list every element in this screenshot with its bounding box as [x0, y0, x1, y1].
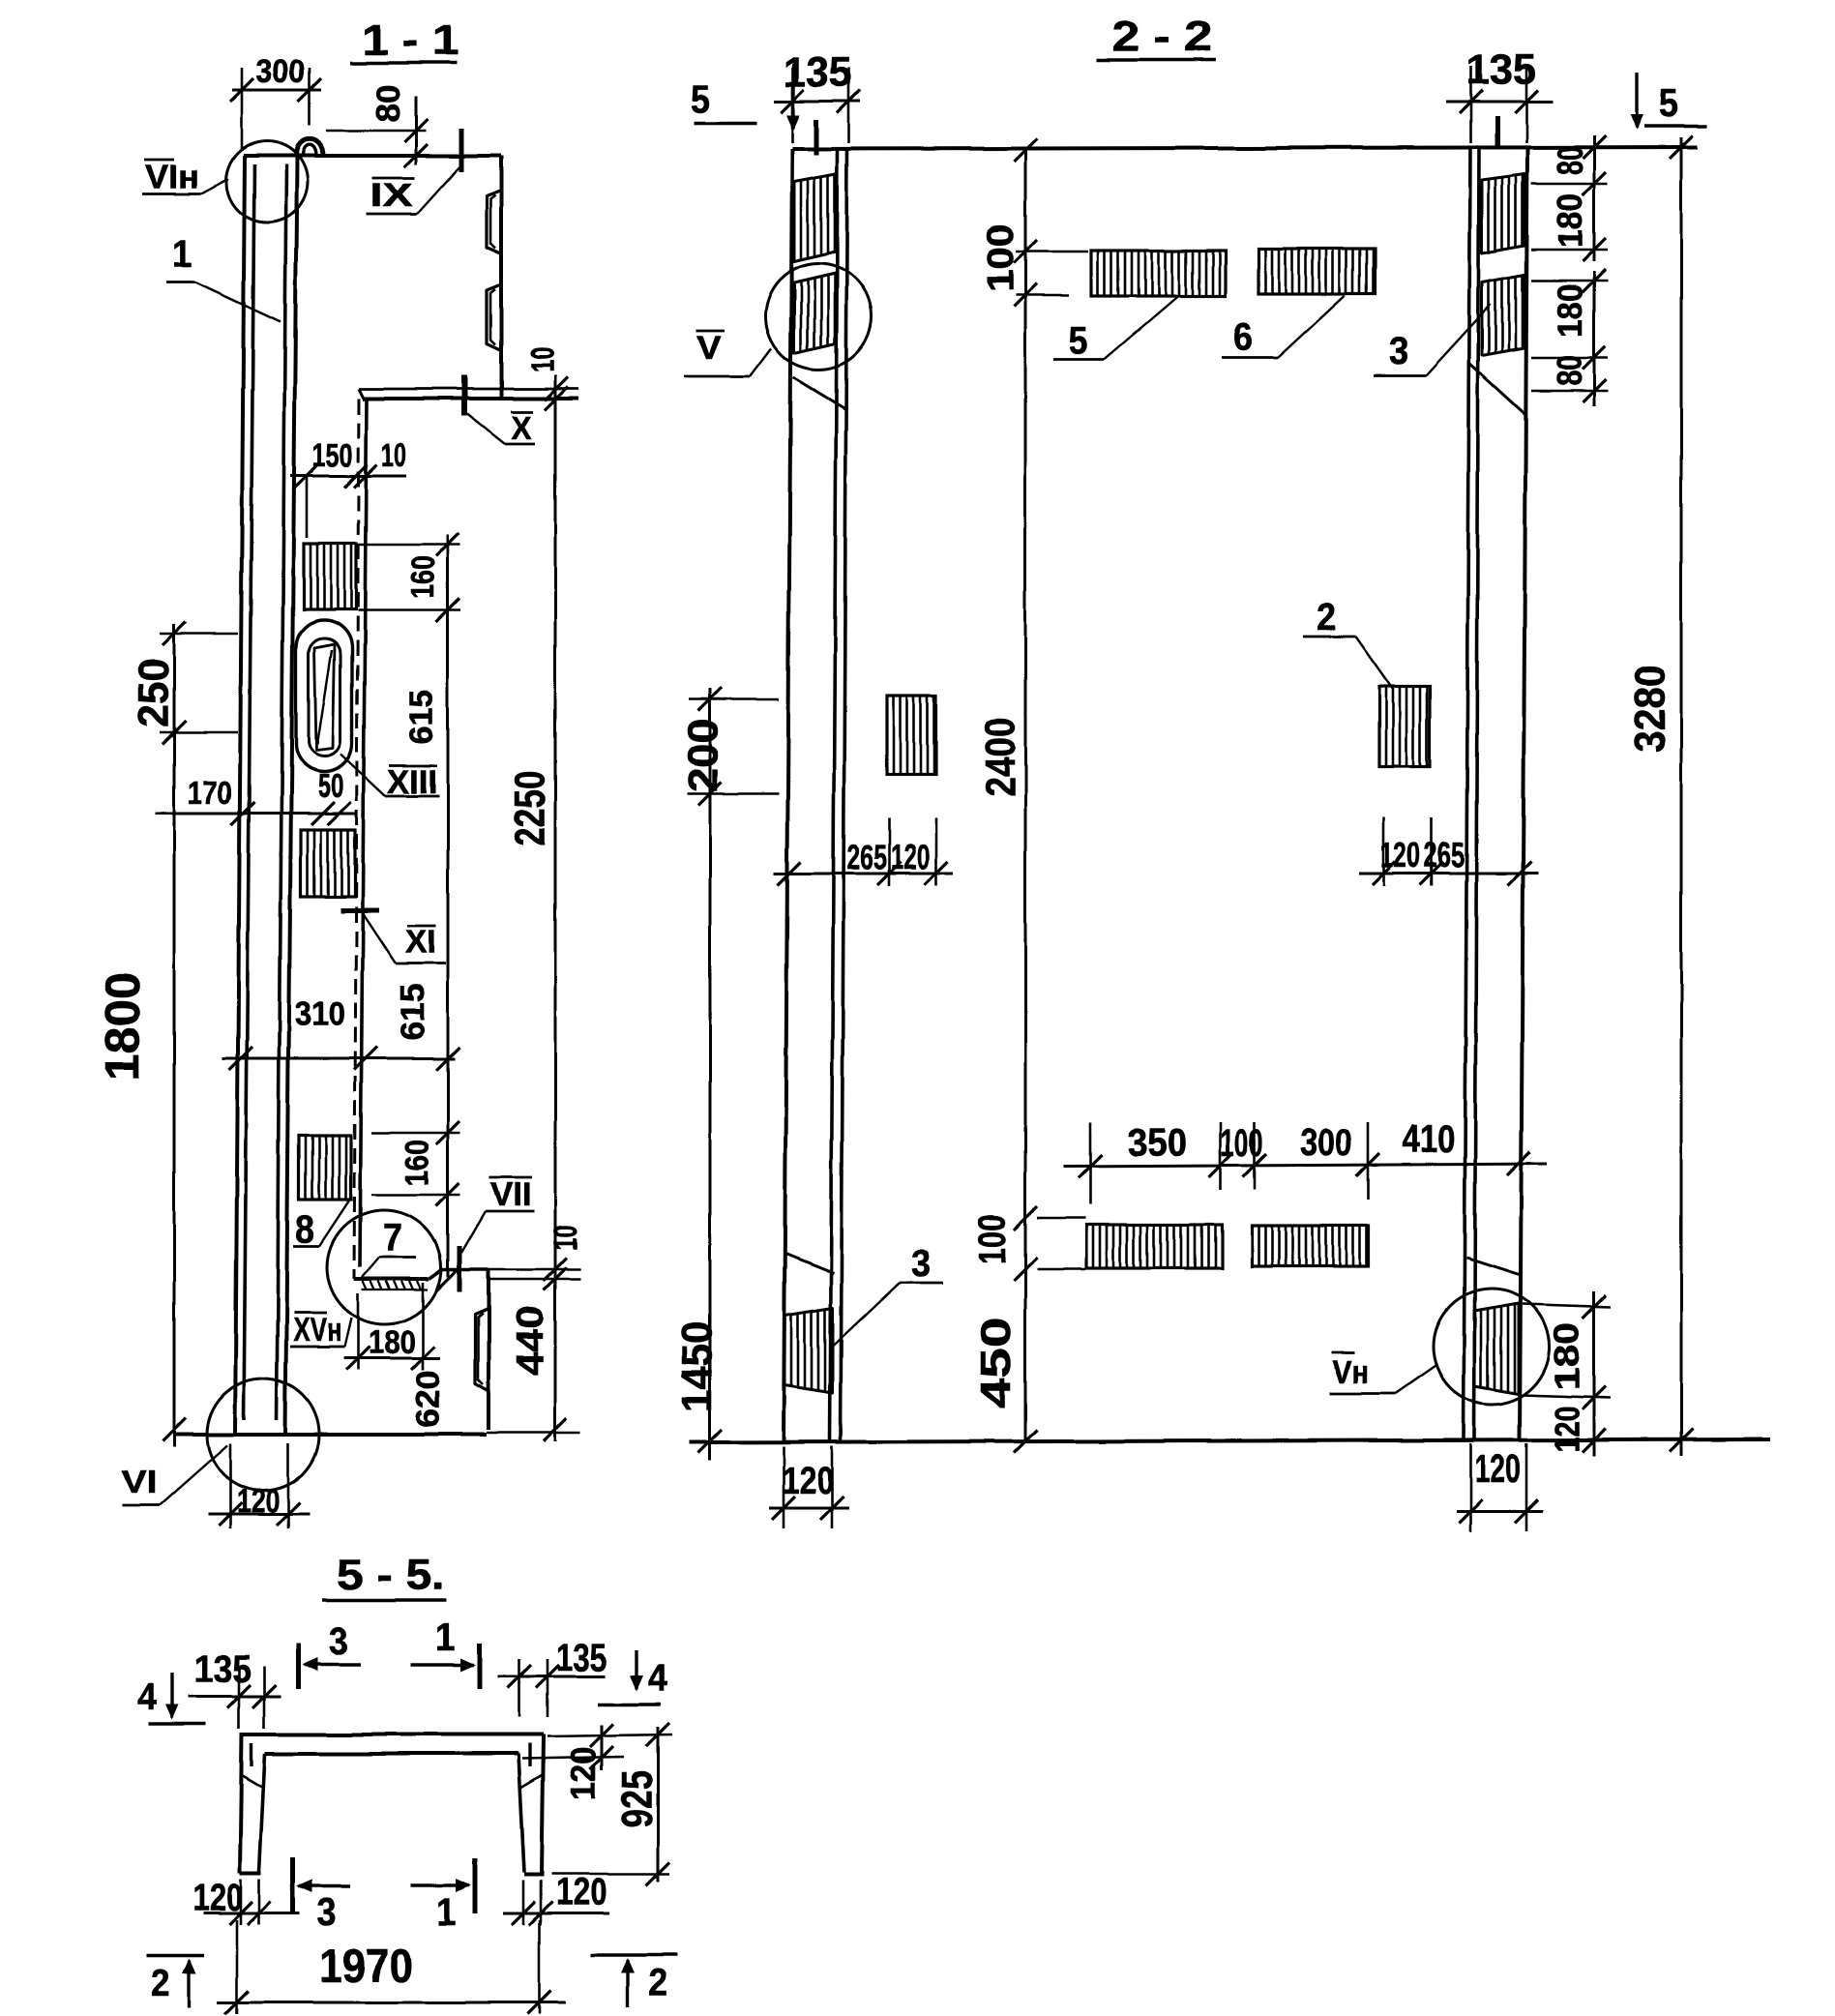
svg-text:50: 50: [318, 768, 344, 805]
svg-text:1450: 1450: [674, 1321, 722, 1412]
svg-text:100: 100: [1221, 1122, 1263, 1165]
svg-text:180: 180: [369, 1324, 416, 1361]
svg-text:80: 80: [370, 85, 407, 123]
svg-text:160: 160: [405, 556, 442, 600]
svg-text:1970: 1970: [319, 1942, 413, 1993]
svg-text:3: 3: [1389, 330, 1408, 372]
svg-text:2400: 2400: [977, 718, 1024, 797]
svg-text:120: 120: [556, 1871, 607, 1913]
svg-text:120: 120: [1474, 1448, 1521, 1491]
svg-text:8: 8: [295, 1208, 314, 1251]
svg-text:3: 3: [329, 1620, 348, 1663]
svg-text:VI: VI: [122, 1464, 158, 1500]
svg-text:350: 350: [1127, 1122, 1187, 1165]
svg-text:300: 300: [256, 53, 306, 90]
svg-text:120: 120: [564, 1747, 604, 1800]
svg-text:5: 5: [1659, 82, 1678, 125]
svg-text:3: 3: [317, 1891, 337, 1934]
svg-text:615: 615: [403, 690, 440, 745]
svg-text:2 - 2: 2 - 2: [1111, 14, 1212, 61]
svg-text:VIн: VIн: [145, 159, 199, 195]
svg-text:310: 310: [295, 996, 345, 1033]
svg-text:4: 4: [648, 1657, 668, 1700]
svg-text:180: 180: [1551, 193, 1590, 248]
svg-text:1: 1: [172, 233, 192, 276]
svg-text:440: 440: [509, 1306, 551, 1376]
svg-text:IX: IX: [370, 177, 413, 214]
svg-text:265: 265: [1424, 836, 1465, 875]
svg-text:100: 100: [971, 1214, 1014, 1264]
svg-text:1 - 1: 1 - 1: [362, 17, 459, 65]
svg-text:80: 80: [1551, 146, 1590, 175]
svg-text:V: V: [697, 330, 722, 367]
svg-text:1: 1: [436, 1891, 456, 1934]
svg-text:XI: XI: [405, 924, 436, 961]
svg-text:2250: 2250: [507, 770, 554, 845]
svg-text:615: 615: [395, 984, 431, 1041]
svg-text:100: 100: [981, 224, 1021, 292]
svg-text:620: 620: [410, 1370, 447, 1428]
svg-text:150: 150: [312, 437, 353, 474]
svg-text:410: 410: [1403, 1118, 1456, 1161]
svg-text:5: 5: [691, 78, 710, 121]
svg-text:1800: 1800: [96, 972, 150, 1081]
svg-text:XVн: XVн: [293, 1312, 341, 1349]
svg-text:7: 7: [383, 1217, 402, 1260]
svg-text:1: 1: [436, 1616, 456, 1659]
svg-text:200: 200: [680, 719, 727, 793]
svg-text:10: 10: [524, 347, 561, 372]
svg-text:120: 120: [891, 838, 931, 877]
svg-text:5 - 5.: 5 - 5.: [337, 1552, 445, 1599]
svg-text:5: 5: [1069, 319, 1088, 362]
svg-text:2: 2: [151, 1962, 170, 2004]
svg-text:6: 6: [1233, 316, 1253, 359]
svg-text:135: 135: [1466, 46, 1536, 94]
svg-text:135: 135: [194, 1648, 252, 1691]
svg-text:2: 2: [1317, 596, 1336, 638]
svg-text:180: 180: [1551, 283, 1590, 338]
svg-text:120: 120: [192, 1877, 243, 1919]
svg-text:VII: VII: [490, 1176, 531, 1213]
svg-text:265: 265: [847, 838, 887, 877]
svg-text:120: 120: [1381, 836, 1421, 875]
svg-text:80: 80: [1550, 355, 1589, 386]
svg-text:250: 250: [131, 658, 178, 727]
svg-text:10: 10: [548, 1225, 584, 1250]
svg-text:Vн: Vн: [1332, 1354, 1369, 1391]
svg-text:X: X: [512, 410, 532, 447]
svg-text:135: 135: [783, 49, 852, 97]
svg-text:3280: 3280: [1627, 665, 1674, 753]
svg-text:135: 135: [556, 1637, 607, 1679]
svg-text:120: 120: [783, 1460, 834, 1502]
svg-text:120: 120: [1548, 1406, 1587, 1452]
svg-text:2: 2: [648, 1962, 667, 2004]
svg-text:4: 4: [137, 1675, 158, 1718]
svg-text:450: 450: [973, 1318, 1021, 1409]
svg-text:170: 170: [188, 775, 232, 812]
svg-text:3: 3: [911, 1242, 931, 1285]
svg-text:120: 120: [237, 1483, 281, 1520]
svg-text:10: 10: [381, 437, 406, 474]
svg-text:300: 300: [1300, 1121, 1352, 1164]
svg-text:925: 925: [614, 1770, 662, 1828]
svg-text:180: 180: [1548, 1322, 1587, 1390]
svg-text:160: 160: [400, 1140, 436, 1186]
